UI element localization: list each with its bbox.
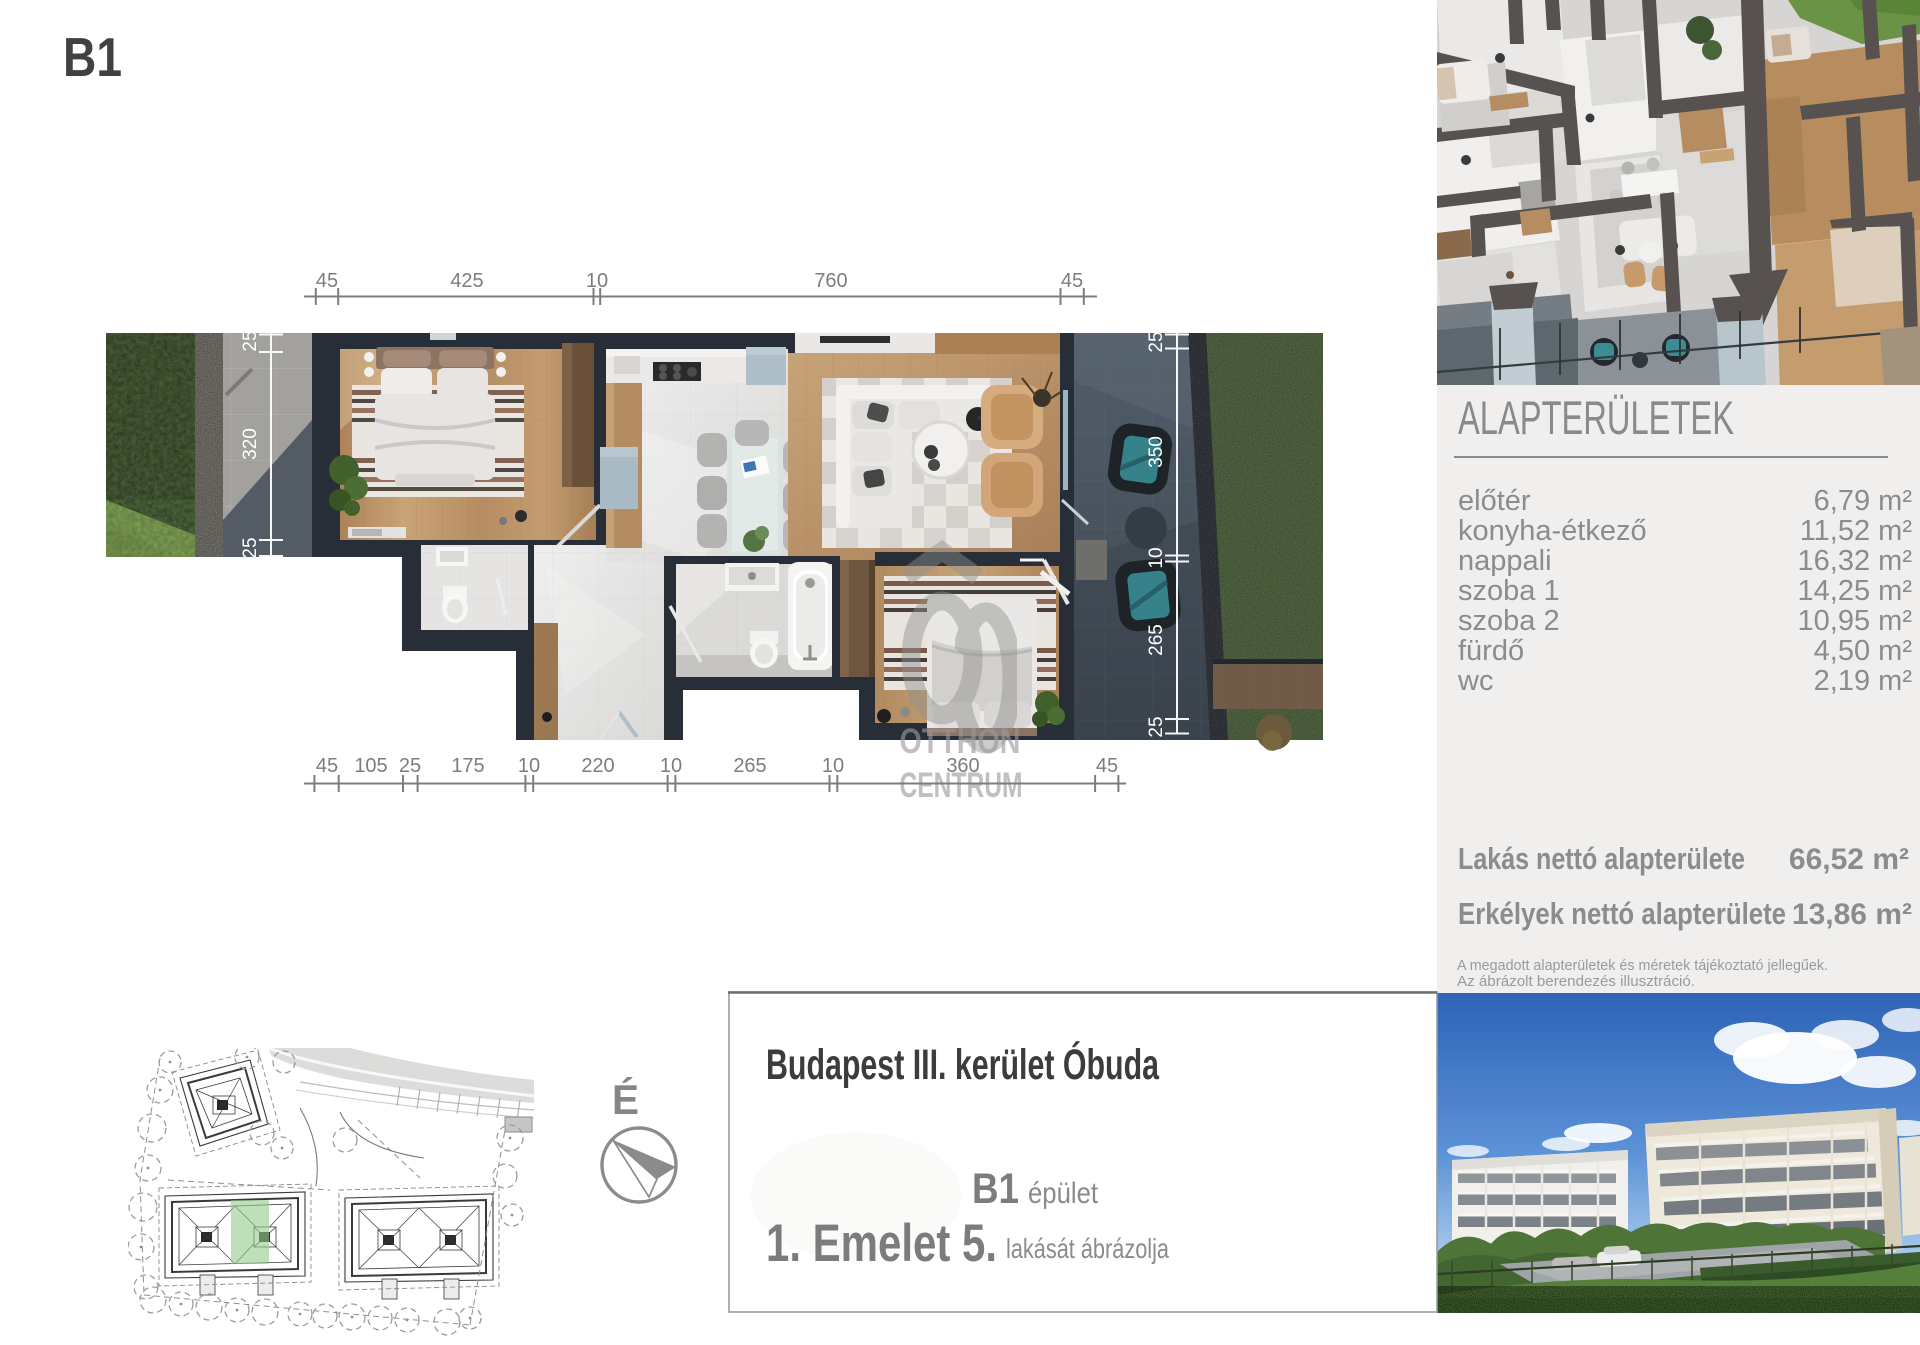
- svg-text:220: 220: [581, 755, 614, 777]
- svg-text:nappali: nappali: [1458, 545, 1552, 577]
- svg-text:6,79 m²: 6,79 m²: [1814, 485, 1913, 517]
- svg-text:25: 25: [399, 755, 421, 777]
- svg-text:25: 25: [1146, 331, 1167, 352]
- svg-text:45: 45: [1096, 755, 1118, 777]
- svg-text:45: 45: [1061, 270, 1083, 292]
- svg-text:265: 265: [1146, 624, 1167, 656]
- svg-text:16,32 m²: 16,32 m²: [1798, 545, 1913, 577]
- svg-text:10: 10: [822, 755, 844, 777]
- svg-text:1. Emelet 5.: 1. Emelet 5.: [766, 1214, 997, 1273]
- svg-text:Az ábrázolt berendezés illusz: Az ábrázolt berendezés illusztráció.: [1457, 973, 1695, 990]
- svg-text:14,25 m²: 14,25 m²: [1798, 575, 1913, 607]
- svg-text:25: 25: [240, 330, 261, 351]
- svg-text:Erkélyek nettó alapterülete: Erkélyek nettó alapterülete: [1458, 896, 1786, 931]
- svg-text:4,50 m²: 4,50 m²: [1814, 635, 1913, 667]
- svg-text:10,95 m²: 10,95 m²: [1798, 605, 1913, 637]
- svg-text:360: 360: [946, 755, 979, 777]
- svg-text:25: 25: [240, 537, 261, 558]
- svg-text:350: 350: [1146, 436, 1167, 468]
- svg-text:320: 320: [240, 428, 261, 460]
- svg-text:Budapest III. kerület Óbuda: Budapest III. kerület Óbuda: [766, 1040, 1160, 1089]
- svg-text:10: 10: [518, 755, 540, 777]
- svg-text:szoba 1: szoba 1: [1458, 575, 1560, 607]
- svg-text:105: 105: [354, 755, 387, 777]
- svg-text:épület: épület: [1028, 1177, 1099, 1210]
- svg-text:10: 10: [660, 755, 682, 777]
- svg-text:175: 175: [451, 755, 484, 777]
- svg-text:lakását ábrázolja: lakását ábrázolja: [1006, 1233, 1169, 1264]
- svg-text:A megadott alapterületek és mé: A megadott alapterületek és méretek tájé…: [1457, 957, 1828, 974]
- svg-text:Lakás nettó alapterülete: Lakás nettó alapterülete: [1458, 841, 1745, 876]
- svg-text:ALAPTERÜLETEK: ALAPTERÜLETEK: [1458, 391, 1734, 444]
- svg-text:B1: B1: [972, 1165, 1019, 1213]
- svg-text:11,52 m²: 11,52 m²: [1800, 515, 1913, 547]
- svg-text:25: 25: [1146, 716, 1167, 737]
- svg-text:konyha-étkező: konyha-étkező: [1458, 515, 1647, 547]
- svg-text:760: 760: [814, 270, 847, 292]
- svg-text:2,19 m²: 2,19 m²: [1814, 665, 1913, 697]
- svg-text:265: 265: [733, 755, 766, 777]
- svg-text:fürdő: fürdő: [1458, 635, 1524, 667]
- svg-text:425: 425: [450, 270, 483, 292]
- svg-text:66,52 m²: 66,52 m²: [1789, 843, 1909, 876]
- svg-text:45: 45: [316, 270, 338, 292]
- svg-text:É: É: [612, 1076, 639, 1123]
- svg-text:B1: B1: [63, 26, 122, 88]
- svg-text:45: 45: [316, 755, 338, 777]
- svg-text:10: 10: [1146, 547, 1167, 568]
- svg-text:szoba 2: szoba 2: [1458, 605, 1560, 637]
- svg-text:wc: wc: [1457, 665, 1493, 697]
- svg-text:10: 10: [586, 270, 608, 292]
- svg-text:előtér: előtér: [1458, 485, 1531, 517]
- svg-text:13,86 m²: 13,86 m²: [1792, 898, 1912, 931]
